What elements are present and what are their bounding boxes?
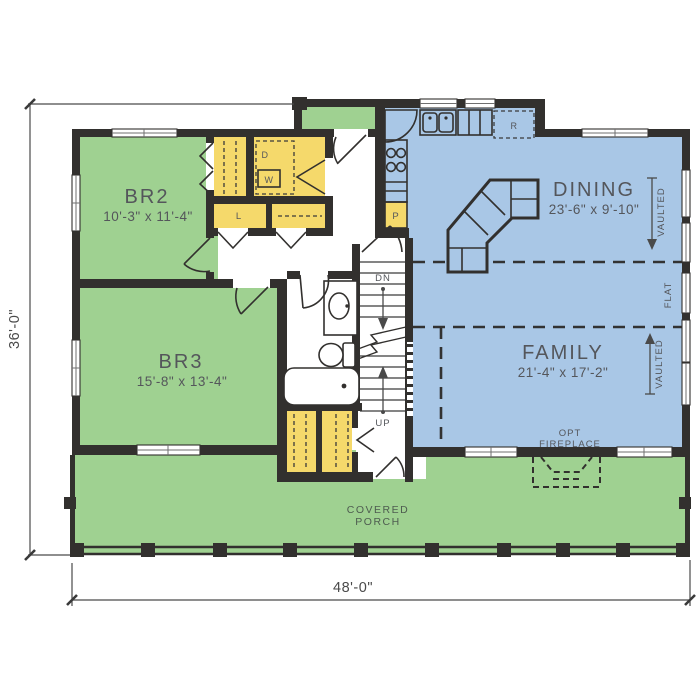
vanity-sink-icon	[324, 281, 357, 335]
washer-label: W	[265, 175, 274, 185]
room-label-family: FAMILY	[522, 342, 604, 364]
floor-plan-page: R P D W L	[0, 0, 700, 700]
dimension-bottom: 48'-0"	[67, 560, 695, 606]
stair-up-label: UP	[375, 418, 390, 429]
room-dims-family: 21'-4" x 17'-2"	[518, 365, 609, 380]
window-icon	[137, 445, 200, 455]
window-icon	[682, 363, 690, 405]
room-dims-br3: 15'-8" x 13'-4"	[137, 374, 228, 389]
window-icon	[617, 447, 672, 457]
flat-ceiling-label: FLAT	[663, 282, 674, 309]
window-icon	[72, 340, 80, 396]
laundry-closet-area	[214, 137, 325, 200]
room-label-dining: DINING	[553, 179, 635, 201]
fireplace-label-line2: FIREPLACE	[539, 439, 601, 450]
window-icon	[582, 129, 648, 137]
stair-dn-label: DN	[375, 273, 391, 284]
stair-down-arrow	[378, 287, 388, 330]
porch-label-line1: COVERED	[347, 504, 409, 516]
linen-label: L	[236, 211, 242, 222]
window-icon	[682, 273, 690, 313]
dryer-label: D	[262, 150, 269, 160]
window-icon	[465, 447, 517, 457]
room-label-br2: BR2	[125, 186, 170, 208]
porch-label-line2: PORCH	[355, 516, 400, 528]
stair-railing	[405, 342, 413, 419]
window-icon	[72, 175, 80, 231]
fireplace-label-line1: OPT	[559, 428, 582, 439]
vaulted-dining-label: VAULTED	[656, 187, 667, 236]
door-swing	[334, 135, 366, 164]
window-icon	[682, 320, 690, 362]
width-dimension-label: 48'-0"	[333, 580, 373, 596]
window-icon	[682, 223, 690, 262]
refrigerator-label: R	[511, 121, 518, 131]
bifold-door-icon	[218, 232, 248, 248]
window-icon	[682, 170, 690, 217]
room-dims-br2: 10'-3" x 11'-4"	[103, 209, 193, 224]
pantry-label: P	[392, 211, 399, 222]
room-br2-area	[80, 137, 218, 279]
window-icon	[465, 99, 495, 108]
window-icon	[420, 99, 457, 108]
depth-dimension-label: 36'-0"	[7, 309, 23, 349]
stair-up-arrow	[378, 366, 388, 414]
floor-plan-drawing: R P D W L	[0, 0, 700, 700]
bifold-door-icon	[276, 232, 306, 248]
bathtub-icon	[284, 368, 359, 405]
vaulted-family-label: VAULTED	[654, 339, 665, 388]
staircase: DN UP	[358, 262, 413, 429]
room-dims-dining: 23'-6" x 9'-10"	[549, 202, 640, 217]
window-icon	[112, 129, 177, 137]
room-label-br3: BR3	[159, 351, 204, 373]
toilet-icon	[319, 343, 355, 367]
